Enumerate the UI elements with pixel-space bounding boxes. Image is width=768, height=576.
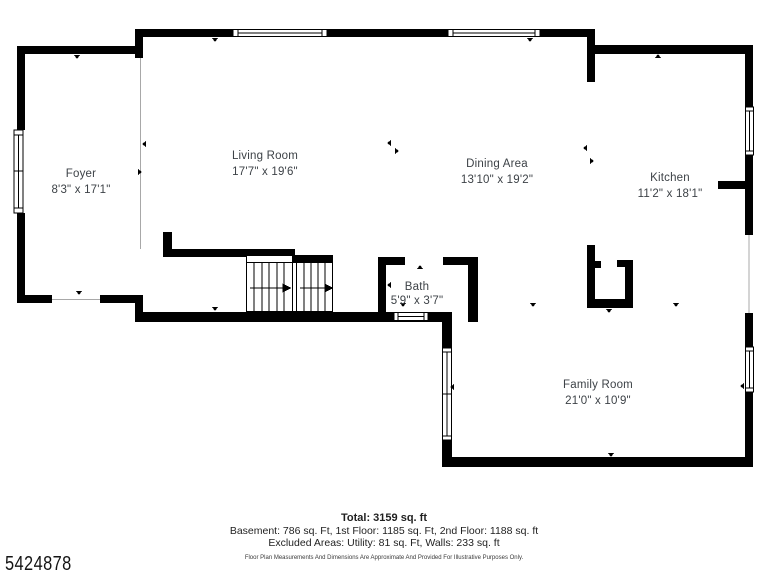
room-name: Family Room (563, 379, 633, 391)
area-summary: Total: 3159 sq. ft Basement: 786 sq. Ft,… (0, 512, 768, 562)
window-symbol (233, 30, 327, 37)
window-symbol (448, 30, 540, 37)
total-area-text: Total: 3159 sq. ft (0, 512, 768, 525)
room-label-family-room: Family Room 21'0" x 10'9" (563, 377, 633, 409)
room-name: Bath (405, 281, 429, 293)
walls-layer (17, 29, 753, 467)
excluded-areas-text: Excluded Areas: Utility: 81 sq. Ft, Wall… (0, 537, 768, 549)
room-label-bath: Bath 5'9" x 3'7" (391, 280, 443, 308)
room-name: Living Room (232, 150, 298, 162)
room-dimensions: 5'9" x 3'7" (391, 294, 443, 308)
window-symbol (443, 348, 452, 440)
room-dimensions: 17'7" x 19'6" (232, 164, 298, 180)
window-symbol (746, 107, 754, 155)
disclaimer-text: Floor Plan Measurements And Dimensions A… (0, 554, 768, 562)
room-label-dining-area: Dining Area 13'10" x 19'2" (461, 156, 533, 188)
door-direction-markers (74, 38, 744, 457)
room-dimensions: 8'3" x 17'1" (51, 182, 110, 198)
window-symbol (14, 130, 23, 213)
room-name: Foyer (66, 168, 96, 180)
staircase (247, 256, 333, 313)
window-symbol (746, 347, 754, 392)
mls-number: 5424878 (5, 553, 72, 576)
floor-plan-page: Foyer 8'3" x 17'1" Living Room 17'7" x 1… (0, 0, 768, 576)
floor-plan-drawing (0, 0, 768, 576)
room-name: Kitchen (650, 172, 690, 184)
room-dimensions: 11'2" x 18'1" (638, 186, 703, 202)
room-label-living-room: Living Room 17'7" x 19'6" (232, 148, 298, 180)
floor-areas-text: Basement: 786 sq. Ft, 1st Floor: 1185 sq… (0, 525, 768, 537)
room-label-foyer: Foyer 8'3" x 17'1" (51, 166, 110, 198)
windows-layer (14, 30, 754, 441)
room-dimensions: 13'10" x 19'2" (461, 172, 533, 188)
room-label-kitchen: Kitchen 11'2" x 18'1" (638, 170, 703, 202)
window-symbol (394, 313, 428, 321)
room-name: Dining Area (466, 158, 528, 170)
room-dimensions: 21'0" x 10'9" (563, 393, 633, 409)
